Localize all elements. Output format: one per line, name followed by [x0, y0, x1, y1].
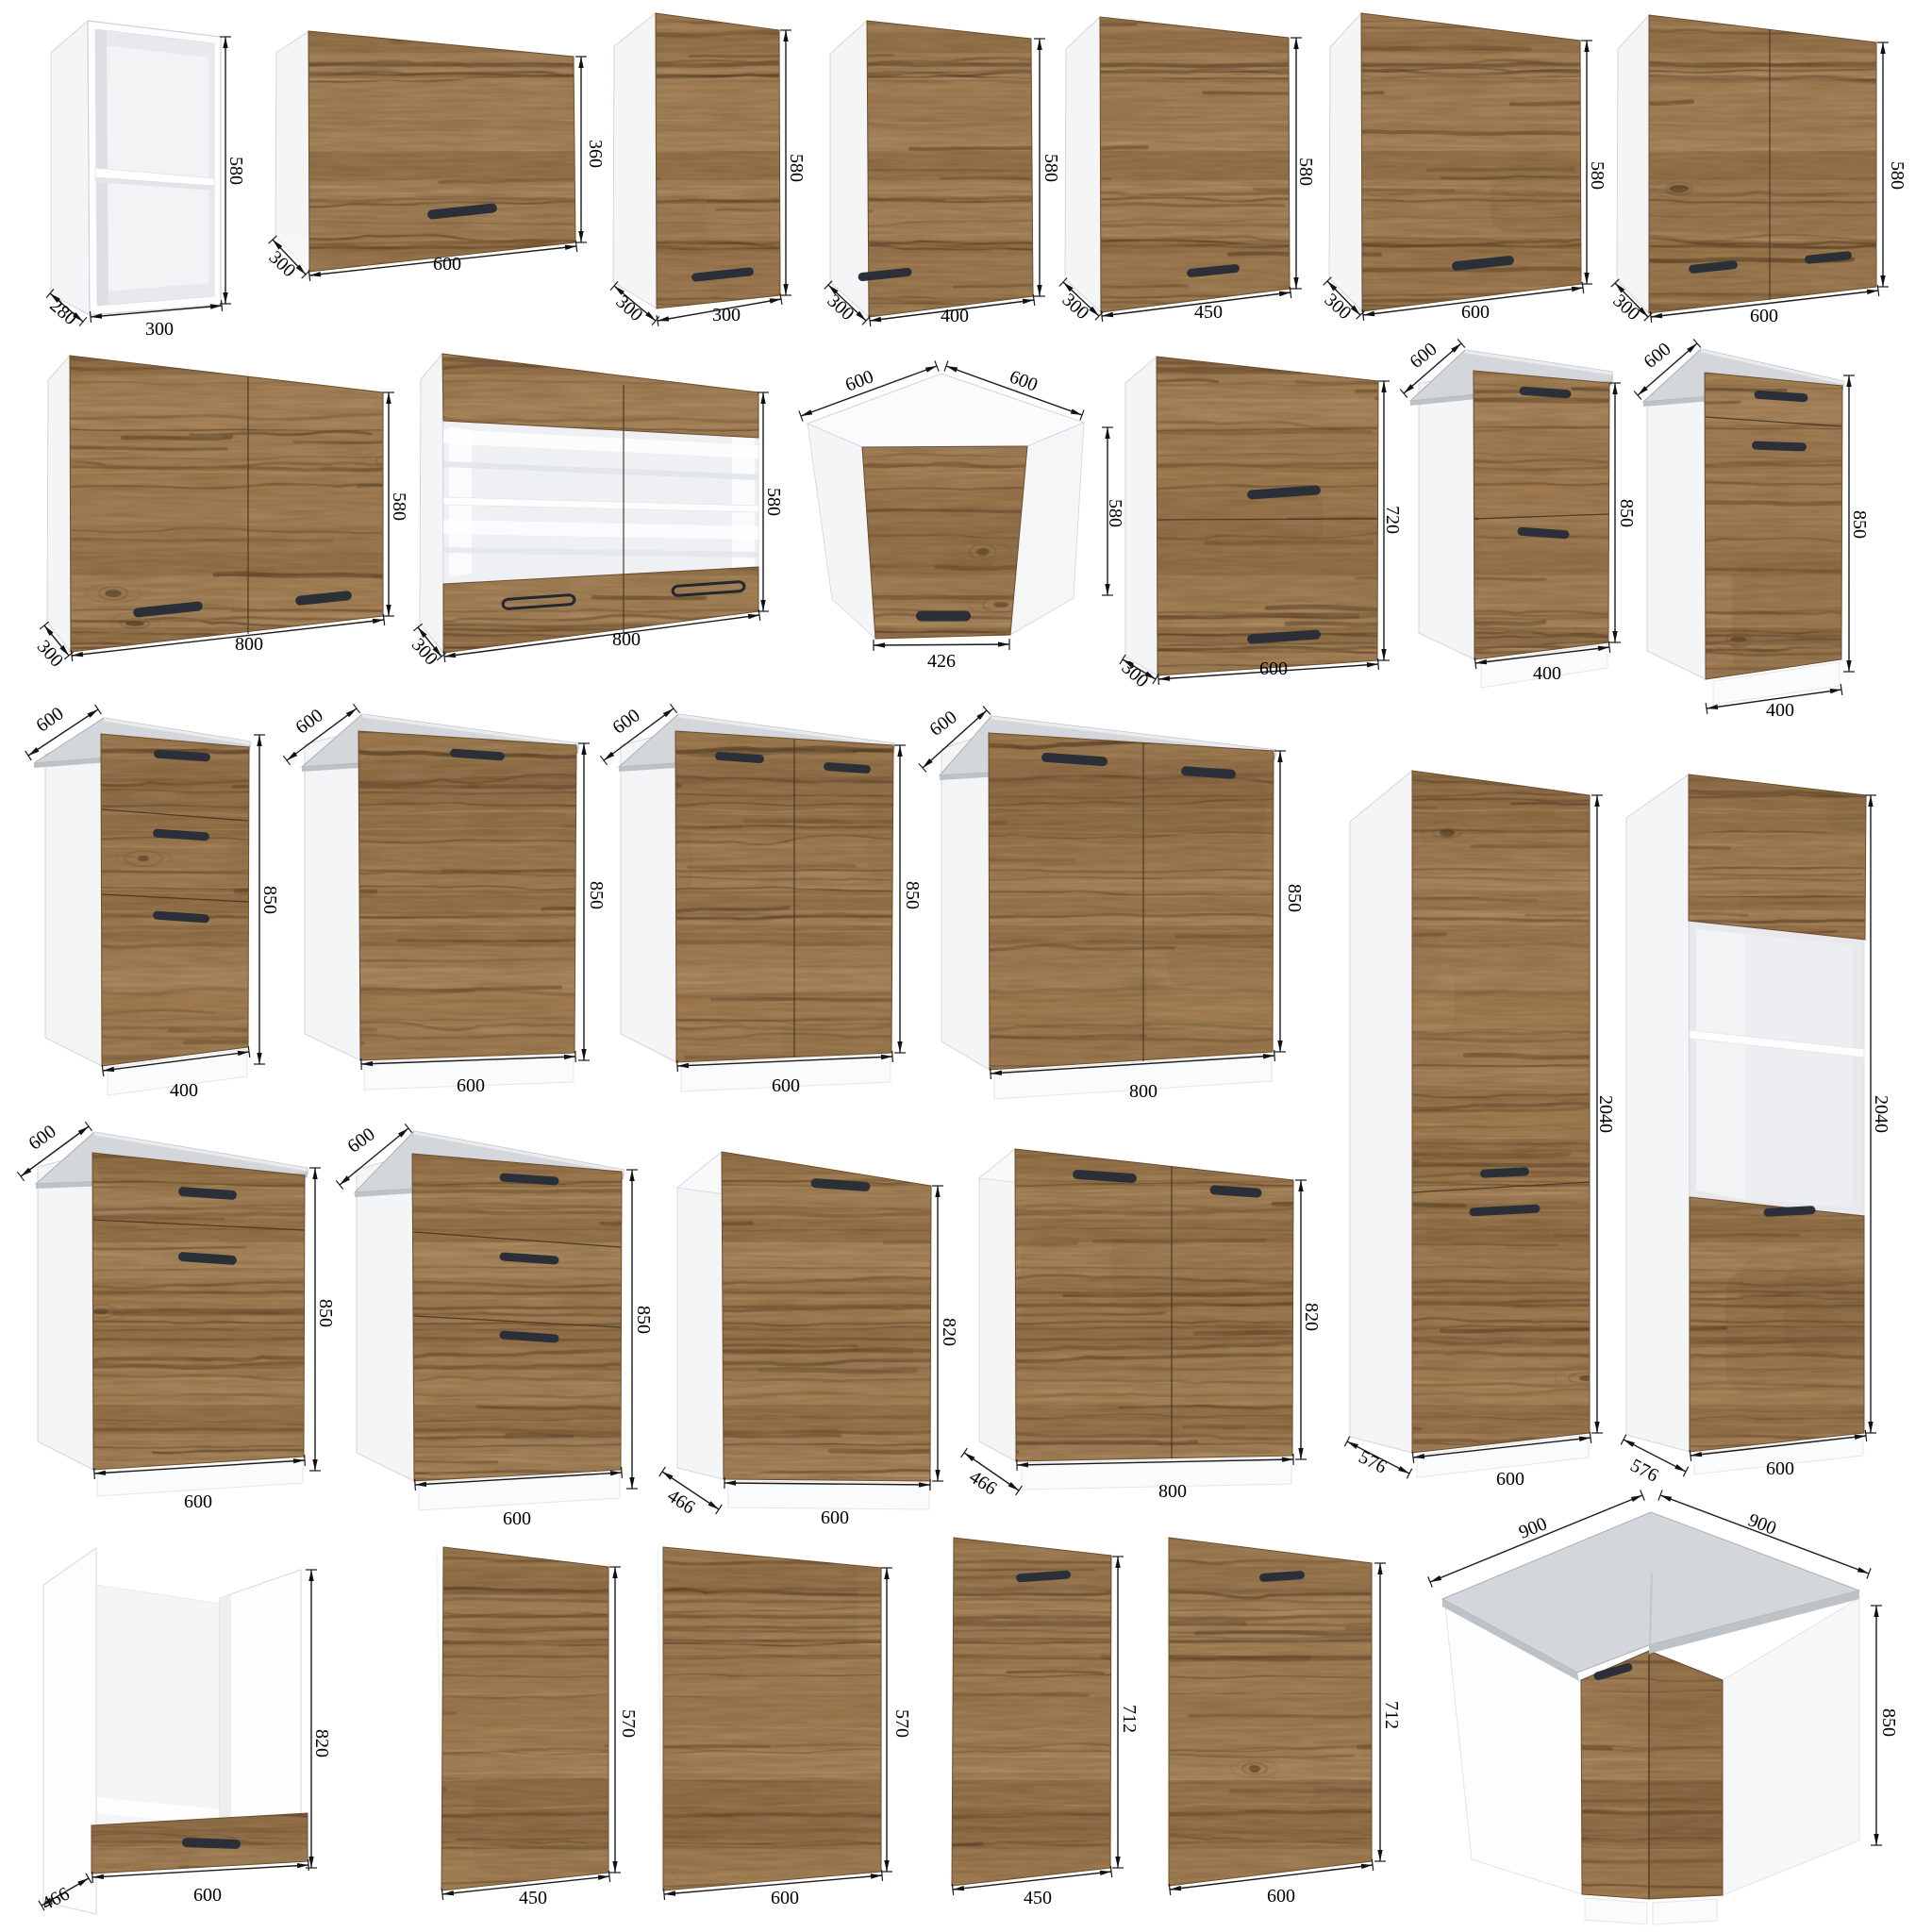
- svg-text:600: 600: [1750, 306, 1778, 326]
- svg-text:600: 600: [193, 1885, 222, 1906]
- svg-text:600: 600: [1259, 658, 1288, 679]
- svg-text:360: 360: [585, 140, 606, 168]
- svg-text:850: 850: [586, 881, 607, 909]
- svg-text:712: 712: [1381, 1701, 1402, 1729]
- svg-text:580: 580: [763, 488, 784, 516]
- svg-text:580: 580: [1887, 161, 1907, 190]
- svg-text:580: 580: [786, 154, 807, 182]
- svg-text:400: 400: [170, 1080, 198, 1101]
- svg-text:300: 300: [145, 319, 174, 340]
- svg-text:800: 800: [612, 629, 641, 650]
- svg-text:800: 800: [1158, 1481, 1187, 1502]
- svg-text:400: 400: [941, 306, 969, 326]
- svg-text:850: 850: [633, 1306, 654, 1334]
- svg-text:850: 850: [259, 886, 280, 914]
- svg-text:600: 600: [1766, 1458, 1794, 1479]
- svg-text:850: 850: [1616, 499, 1637, 527]
- svg-text:720: 720: [1382, 506, 1403, 534]
- svg-text:600: 600: [771, 1888, 799, 1908]
- svg-text:800: 800: [235, 634, 263, 655]
- svg-text:580: 580: [1105, 499, 1125, 527]
- svg-text:850: 850: [1849, 510, 1870, 539]
- svg-text:820: 820: [1301, 1303, 1322, 1331]
- svg-text:600: 600: [184, 1491, 212, 1512]
- svg-text:400: 400: [1533, 663, 1561, 684]
- svg-text:570: 570: [891, 1709, 912, 1738]
- svg-text:2040: 2040: [1871, 1095, 1891, 1133]
- svg-text:580: 580: [225, 157, 246, 185]
- svg-text:850: 850: [315, 1299, 336, 1327]
- svg-text:570: 570: [618, 1709, 639, 1738]
- svg-text:580: 580: [1041, 154, 1061, 182]
- svg-text:820: 820: [311, 1729, 332, 1757]
- svg-text:712: 712: [1119, 1705, 1140, 1733]
- svg-text:820: 820: [939, 1318, 959, 1346]
- svg-text:450: 450: [1194, 302, 1223, 323]
- svg-text:400: 400: [1766, 700, 1794, 721]
- svg-text:600: 600: [1496, 1469, 1524, 1490]
- svg-text:600: 600: [433, 254, 461, 275]
- svg-text:300: 300: [712, 305, 741, 325]
- svg-text:600: 600: [772, 1075, 800, 1096]
- svg-text:850: 850: [902, 881, 923, 909]
- svg-text:800: 800: [1129, 1081, 1158, 1102]
- svg-text:450: 450: [1024, 1888, 1052, 1908]
- svg-text:850: 850: [1878, 1708, 1899, 1737]
- svg-text:600: 600: [503, 1508, 531, 1529]
- svg-text:2040: 2040: [1595, 1095, 1616, 1133]
- svg-text:850: 850: [1284, 884, 1305, 912]
- svg-text:580: 580: [389, 492, 409, 521]
- svg-text:600: 600: [1267, 1886, 1295, 1907]
- svg-text:600: 600: [1461, 302, 1490, 323]
- svg-text:580: 580: [1587, 161, 1607, 190]
- svg-text:600: 600: [457, 1075, 485, 1096]
- svg-text:600: 600: [821, 1507, 849, 1528]
- svg-text:580: 580: [1295, 158, 1316, 186]
- svg-text:426: 426: [927, 651, 956, 672]
- svg-text:450: 450: [519, 1888, 547, 1908]
